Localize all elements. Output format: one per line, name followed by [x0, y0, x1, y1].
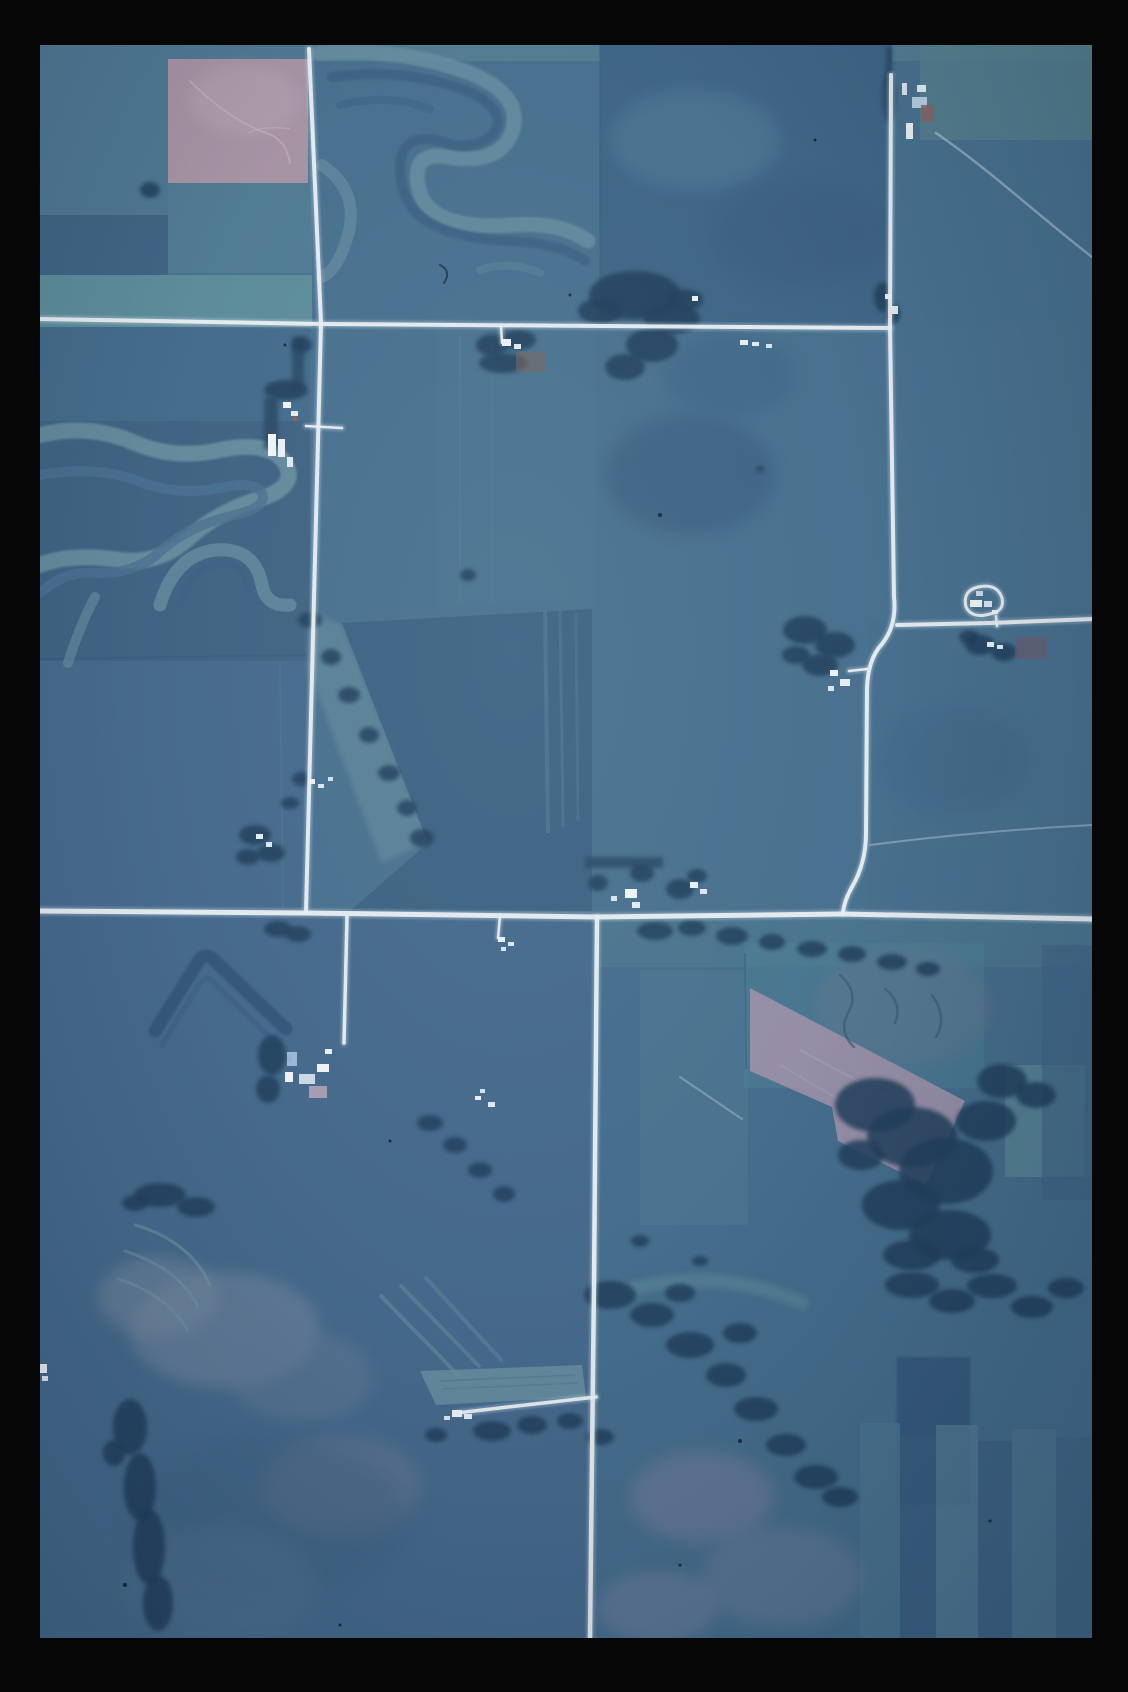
farm-building: [611, 896, 617, 901]
tree-clump: [782, 646, 810, 664]
tree-clump: [140, 182, 160, 198]
tree-clump: [637, 922, 673, 940]
tree-clump: [256, 1075, 280, 1103]
tree-clump: [716, 927, 748, 945]
farm-building: [692, 296, 698, 301]
field-patch: [605, 415, 775, 535]
farm-building: [501, 947, 506, 951]
tree-clump: [143, 1575, 173, 1631]
farm-building: [632, 902, 640, 908]
field-patch: [936, 1425, 978, 1638]
farm-building: [984, 601, 992, 607]
field-patch: [900, 1435, 936, 1638]
tree-clump: [557, 1413, 583, 1429]
tree-clump: [723, 1323, 757, 1343]
farm-building: [444, 1416, 450, 1420]
field-patch: [168, 183, 312, 273]
tree-clump: [397, 800, 417, 816]
film-speck: [989, 1520, 992, 1523]
tree-clump: [959, 630, 979, 644]
tree-clump: [285, 926, 311, 942]
farm-building: [992, 610, 998, 614]
tree-clump: [460, 569, 476, 581]
farm-building: [840, 679, 850, 686]
field-patch: [978, 1441, 1012, 1638]
field-patch: [920, 45, 1092, 140]
farm-building: [287, 1055, 292, 1062]
field-patch: [702, 1527, 862, 1627]
field-patch: [745, 953, 746, 1069]
tree-clump: [822, 1487, 858, 1507]
tree-clump: [631, 1235, 649, 1247]
farm-driveway: [501, 326, 502, 343]
farm-building: [987, 642, 994, 647]
farm-building: [917, 85, 926, 92]
tree-clump: [991, 643, 1017, 661]
field-patch: [630, 1451, 774, 1543]
farm-building: [317, 1064, 329, 1072]
farm-building: [752, 342, 759, 346]
film-speck: [389, 1140, 392, 1143]
tree-clump: [258, 1035, 286, 1075]
tree-clump: [473, 1421, 511, 1441]
farm-building: [885, 294, 892, 299]
farm-building: [268, 434, 276, 456]
tree-clump: [417, 1115, 443, 1131]
farm-building: [293, 417, 297, 421]
farm-building: [308, 779, 315, 784]
tree-row: [585, 857, 663, 868]
farm-building: [514, 344, 521, 349]
tree-clump: [666, 1332, 714, 1358]
farm-building: [906, 123, 913, 139]
farm-building: [480, 1089, 485, 1093]
farm-building: [266, 842, 272, 847]
tree-clump: [1016, 1082, 1056, 1108]
field-patch: [40, 661, 308, 911]
field-patch: [576, 613, 578, 821]
farm-building: [40, 1364, 47, 1373]
field-patch: [610, 90, 780, 190]
tree-clump: [493, 1186, 515, 1202]
tree-clump: [1048, 1278, 1084, 1298]
aerial-photograph: [40, 45, 1092, 1638]
field-patch: [230, 1331, 374, 1423]
farm-building: [828, 686, 834, 691]
tree-clump: [692, 1256, 708, 1266]
tree-clump: [797, 941, 827, 957]
tree-clump: [264, 380, 308, 400]
farm-building: [997, 645, 1003, 649]
farm-building: [464, 1414, 472, 1419]
slide-mount-border: [0, 0, 1128, 1692]
tree-clump: [281, 797, 299, 809]
tree-clump: [468, 1162, 492, 1178]
tree-clump: [956, 1101, 1016, 1141]
film-speck: [339, 1624, 342, 1627]
farm-building: [700, 889, 707, 894]
farm-building: [299, 1074, 315, 1084]
tree-clump: [321, 649, 341, 665]
tree-clump: [766, 1434, 806, 1456]
field-patch: [40, 215, 168, 275]
tree-clump: [378, 765, 400, 781]
farm-building: [740, 340, 748, 345]
farm-building: [309, 1086, 327, 1098]
film-speck: [738, 1439, 742, 1443]
field-patch: [1012, 1429, 1056, 1638]
tree-clump: [630, 1303, 674, 1327]
tree-clump: [794, 1465, 838, 1489]
tree-clump: [916, 962, 940, 976]
farm-building: [921, 105, 934, 122]
tree-clump: [292, 337, 312, 353]
farm-building: [452, 1410, 462, 1417]
film-speck: [658, 513, 662, 517]
farm-building: [475, 1096, 481, 1100]
farm-building: [42, 1376, 48, 1381]
farm-building: [291, 411, 298, 416]
tree-clump: [838, 1140, 884, 1170]
field-patch: [1042, 945, 1092, 1200]
tree-clump: [410, 829, 434, 847]
farm-building: [318, 784, 324, 788]
farm-building: [516, 352, 546, 372]
film-speck: [679, 1564, 682, 1567]
field-patch: [640, 970, 748, 1225]
film-speck: [569, 294, 572, 297]
farm-building: [285, 1072, 293, 1082]
farm-building: [508, 942, 514, 946]
farm-building: [287, 457, 293, 467]
tree-clump: [605, 354, 645, 380]
tree-clump: [838, 946, 866, 962]
tree-clump: [951, 1247, 999, 1273]
tree-clump: [666, 879, 694, 899]
farm-building: [502, 339, 511, 346]
farm-building: [488, 1102, 495, 1107]
tree-clump: [122, 1195, 148, 1211]
farm-building: [970, 600, 982, 607]
tree-clump: [133, 1509, 165, 1585]
tree-clump: [885, 1272, 939, 1298]
tree-clump: [1011, 1296, 1053, 1318]
farm-building: [328, 777, 333, 781]
film-speck: [123, 1583, 127, 1587]
farm-building: [498, 937, 505, 942]
tree-clump: [517, 1416, 547, 1434]
field-patch: [1056, 1437, 1092, 1638]
farm-building: [766, 344, 772, 348]
farm-building: [625, 889, 637, 898]
field-patch: [860, 1423, 900, 1638]
tree-clump: [665, 1284, 695, 1302]
tree-clump: [443, 1137, 467, 1153]
tree-clump: [756, 466, 764, 472]
farm-building: [892, 306, 898, 314]
farm-building: [325, 1049, 332, 1054]
field-patch: [665, 333, 795, 417]
tree-clump: [883, 1240, 941, 1270]
tree-clump: [103, 1440, 125, 1466]
tree-clump: [678, 920, 706, 936]
tree-clump: [630, 864, 654, 882]
tree-clump: [706, 1363, 746, 1387]
tree-clump: [236, 849, 260, 865]
tree-clump: [967, 1274, 1017, 1298]
farm-building: [256, 834, 263, 839]
field-patch: [880, 705, 1030, 815]
farm-driveway: [996, 616, 997, 626]
tree-clump: [734, 1397, 778, 1421]
tree-clump: [359, 727, 379, 743]
farm-building: [902, 83, 907, 95]
farm-building: [278, 439, 285, 457]
farm-building: [830, 670, 838, 676]
farm-building: [690, 882, 698, 888]
tree-clump: [425, 1428, 447, 1442]
film-speck: [814, 139, 817, 142]
aerial-photo-scene: [40, 45, 1092, 1638]
farm-building: [283, 402, 291, 408]
film-speck: [284, 344, 287, 347]
tree-clump: [338, 687, 360, 703]
farm-building: [976, 591, 983, 596]
farm-building: [1015, 637, 1047, 659]
tree-clump: [687, 869, 707, 883]
tree-clump: [588, 875, 608, 891]
tree-clump: [877, 954, 907, 970]
tree-clump: [759, 934, 785, 950]
tree-clump: [929, 1289, 975, 1313]
field-patch: [710, 180, 890, 290]
tree-clump: [578, 298, 622, 324]
tree-clump: [177, 1197, 215, 1217]
